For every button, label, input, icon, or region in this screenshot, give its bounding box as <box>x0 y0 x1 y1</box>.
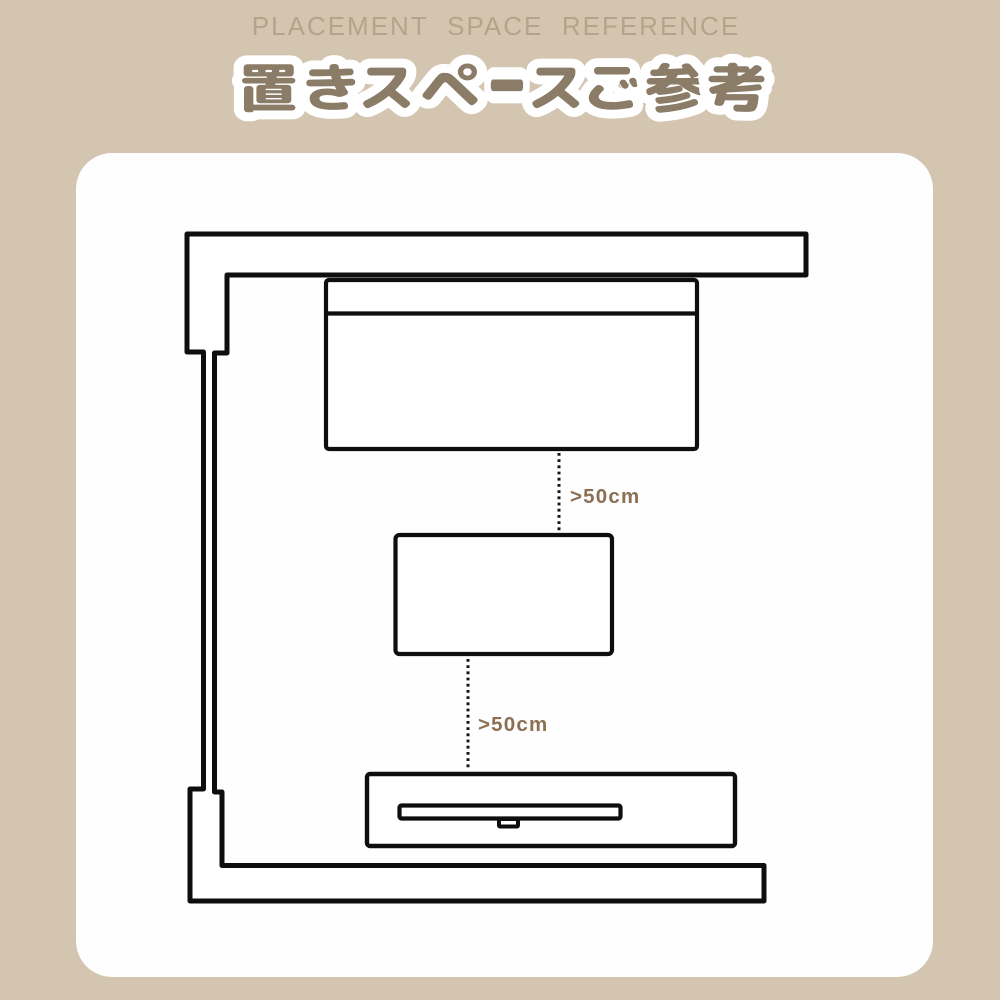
svg-text:>50cm: >50cm <box>570 485 640 508</box>
svg-text:>50cm: >50cm <box>478 713 548 736</box>
svg-text:PLACEMENT SPACE REFERENCE: PLACEMENT SPACE REFERENCE <box>252 11 740 41</box>
